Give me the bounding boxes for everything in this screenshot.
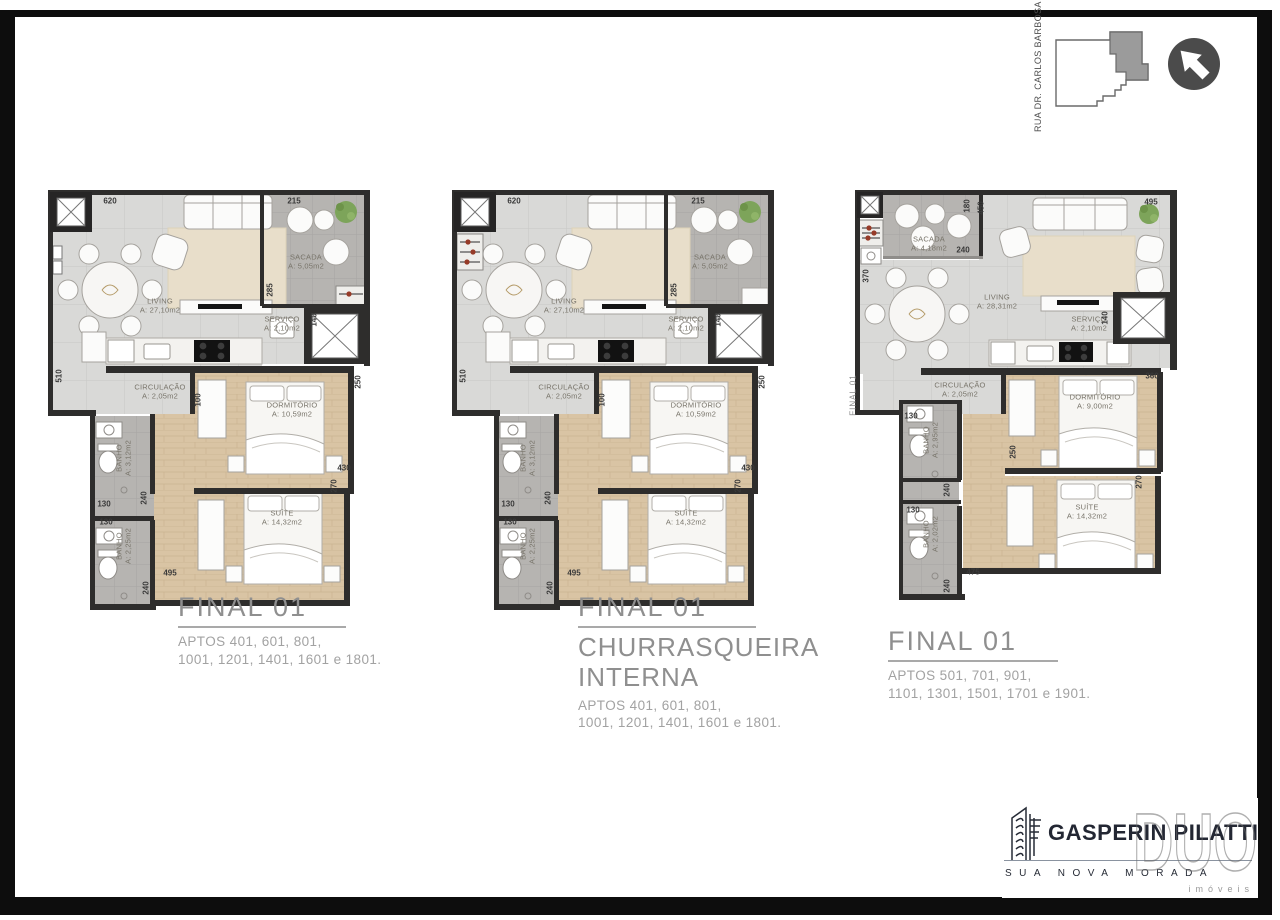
dimension-label: 250 xyxy=(758,375,767,388)
sofa-icon xyxy=(1033,198,1127,230)
plant-icon xyxy=(739,201,761,223)
wardrobe-icon xyxy=(602,500,628,570)
caption-rule xyxy=(178,626,346,628)
dimension-label: 100 xyxy=(194,393,203,406)
dimension-label: 130 xyxy=(503,518,516,527)
building-footprint-icon xyxy=(1052,28,1156,116)
room-area: A: 2,95m2 xyxy=(931,422,940,458)
room-area: A: 2,10m2 xyxy=(264,324,300,333)
room-label-circulacao: CIRCULAÇÃOA: 2,05m2 xyxy=(134,383,185,402)
balcony-chair-icon xyxy=(691,207,717,233)
room-name: DORMITÓRIO xyxy=(671,401,722,410)
dimension-label: 620 xyxy=(507,197,520,206)
wardrobe-icon xyxy=(602,380,630,438)
frame-left xyxy=(0,10,15,915)
room-name: CIRCULAÇÃO xyxy=(538,383,589,392)
room-label-living: LIVINGA: 27,10m2 xyxy=(140,297,180,316)
room-area: A: 10,59m2 xyxy=(272,410,312,419)
aptos-line: APTOS 501, 701, 901, xyxy=(888,667,1118,685)
room-label-circulacao: CIRCULAÇÃOA: 2,05m2 xyxy=(934,381,985,400)
rug-icon xyxy=(1023,236,1135,296)
room-name: DORMITÓRIO xyxy=(1070,393,1121,402)
room-area: A: 5,05m2 xyxy=(288,262,324,271)
room-label-sacada: SACADAA: 5,05m2 xyxy=(288,253,324,272)
sofa-icon xyxy=(184,195,272,229)
armchair-icon xyxy=(1135,234,1165,264)
room-label-banho2: BANHOA: 2,25m2 xyxy=(115,528,134,564)
room-name: CIRCULAÇÃO xyxy=(934,381,985,390)
room-label-servico: SERVIÇOA: 2,10m2 xyxy=(668,315,704,334)
balcony-table-icon xyxy=(925,204,945,224)
frame-top xyxy=(0,10,1272,17)
room-name: SACADA xyxy=(694,253,726,262)
room-label-banho2: BANHOA: 2,02m2 xyxy=(922,516,941,552)
plan-title: FINAL 01 xyxy=(578,592,818,623)
dimension-label: 270 xyxy=(1135,475,1144,488)
cooktop-icon xyxy=(598,340,634,362)
room-name: LIVING xyxy=(147,297,173,306)
balcony-chair-icon xyxy=(947,214,971,238)
room-label-sacada: SACADAA: 5,05m2 xyxy=(692,253,728,272)
dimension-label: 240 xyxy=(544,491,553,504)
room-area: A: 2,05m2 xyxy=(546,392,582,401)
floor-plan-sheet: RUA DR. CARLOS BARBOSA xyxy=(0,0,1280,920)
caption-rule xyxy=(578,626,756,628)
floor-plan-final01-churrasqueira: LIVINGA: 27,10m2SACADAA: 5,05m2SERVIÇOA:… xyxy=(452,190,774,612)
dimension-label: 430 xyxy=(337,464,350,473)
room-area: A: 3,12m2 xyxy=(124,440,133,476)
room-label-banho1: BANHOA: 3,12m2 xyxy=(115,440,134,476)
plan-side-label: FINAL 01 xyxy=(849,374,858,416)
room-area: A: 2,05m2 xyxy=(142,392,178,401)
dimension-label: 215 xyxy=(691,197,704,206)
room-area: A: 4,18m2 xyxy=(911,244,947,253)
room-label-suite: SUÍTEA: 14,32m2 xyxy=(1067,503,1107,522)
dimension-label: 285 xyxy=(266,283,275,296)
sink-icon xyxy=(144,344,170,359)
dimension-label: 285 xyxy=(670,283,679,296)
room-name: BANHO xyxy=(115,444,124,472)
room-name: SUÍTE xyxy=(1075,503,1098,512)
room-name: LIVING xyxy=(984,293,1010,302)
churrasqueira-icon xyxy=(859,220,883,246)
building-icon xyxy=(1008,804,1044,862)
dimension-label: 270 xyxy=(734,479,743,492)
room-name: SUÍTE xyxy=(270,509,293,518)
churrasqueira-icon xyxy=(457,234,483,270)
room-label-servico: SERVIÇOA: 2,10m2 xyxy=(264,315,300,334)
room-name: DORMITÓRIO xyxy=(267,401,318,410)
room-label-banho1: BANHOA: 3,12m2 xyxy=(519,440,538,476)
room-area: A: 27,10m2 xyxy=(544,306,584,315)
aptos-list: APTOS 501, 701, 901, 1101, 1301, 1501, 1… xyxy=(888,667,1118,702)
room-label-dormitorio: DORMITÓRIOA: 10,59m2 xyxy=(671,401,722,420)
room-label-circulacao: CIRCULAÇÃOA: 2,05m2 xyxy=(538,383,589,402)
floor-plan-final01-a: LIVINGA: 27,10m2SACADAA: 5,05m2SERVIÇOA:… xyxy=(48,190,370,612)
balcony-chair-icon xyxy=(895,204,919,228)
dimension-label: 240 xyxy=(956,246,969,255)
aptos-line: 1001, 1201, 1401, 1601 e 1801. xyxy=(578,714,818,732)
plan-title: FINAL 01 xyxy=(178,592,408,623)
dimension-label: 370 xyxy=(862,269,871,282)
dimension-label: 215 xyxy=(287,197,300,206)
plant-icon xyxy=(1139,204,1159,224)
room-name: BANHO xyxy=(519,532,528,560)
dimension-label: 620 xyxy=(103,197,116,206)
dimension-label: 510 xyxy=(459,369,468,382)
room-name: SERVIÇO xyxy=(668,315,703,324)
dimension-label: 130 xyxy=(97,500,110,509)
room-name: SACADA xyxy=(913,235,945,244)
room-name: SUÍTE xyxy=(674,509,697,518)
sink-icon xyxy=(548,344,574,359)
dimension-label: 240 xyxy=(943,579,952,592)
sink-icon xyxy=(1027,346,1053,361)
room-area: A: 14,32m2 xyxy=(262,518,302,527)
tv-icon xyxy=(1057,300,1099,305)
dimension-label: 100 xyxy=(598,393,607,406)
dimension-label: 140 xyxy=(714,313,723,326)
balcony-chair-icon xyxy=(727,239,753,265)
dimension-label: 240 xyxy=(546,581,555,594)
room-label-suite: SUÍTEA: 14,32m2 xyxy=(666,509,706,528)
wardrobe-icon xyxy=(1009,380,1035,436)
plan-caption-2: FINAL 01 CHURRASQUEIRA INTERNA APTOS 401… xyxy=(578,592,818,732)
plan-subtitle: INTERNA xyxy=(578,663,818,693)
room-area: A: 2,02m2 xyxy=(931,516,940,552)
room-label-banho2: BANHOA: 2,25m2 xyxy=(519,528,538,564)
room-area: A: 5,05m2 xyxy=(692,262,728,271)
room-label-banho1: BANHOA: 2,95m2 xyxy=(922,422,941,458)
svg-text:DUO: DUO xyxy=(1133,797,1257,888)
balcony-table-icon xyxy=(314,210,334,230)
laundry-tub-icon xyxy=(1107,342,1129,364)
dimension-label: 430 xyxy=(741,464,754,473)
dimension-label: 130 xyxy=(904,412,917,421)
plan-caption-1: FINAL 01 APTOS 401, 601, 801, 1001, 1201… xyxy=(178,592,408,668)
room-label-dormitorio: DORMITÓRIOA: 10,59m2 xyxy=(267,401,318,420)
aptos-line: 1101, 1301, 1501, 1701 e 1901. xyxy=(888,685,1118,703)
frame-bottom xyxy=(0,897,1272,915)
plan-caption-3: FINAL 01 APTOS 501, 701, 901, 1101, 1301… xyxy=(888,626,1118,702)
room-name: CIRCULAÇÃO xyxy=(134,383,185,392)
dimension-label: 130 xyxy=(906,506,919,515)
dimension-label: 270 xyxy=(330,479,339,492)
room-area: A: 14,32m2 xyxy=(1067,512,1107,521)
aptos-line: APTOS 401, 601, 801, xyxy=(578,697,818,715)
dimension-label: 130 xyxy=(501,500,514,509)
plan-title: FINAL 01 xyxy=(888,626,1118,657)
wardrobe-icon xyxy=(198,380,226,438)
dimension-label: 510 xyxy=(55,369,64,382)
dimension-label: 240 xyxy=(140,491,149,504)
room-area: A: 2,10m2 xyxy=(668,324,704,333)
room-name: BANHO xyxy=(115,532,124,560)
dimension-label: 180 xyxy=(963,199,972,212)
dimension-label: 140 xyxy=(1101,311,1110,324)
room-area: A: 2,05m2 xyxy=(942,390,978,399)
room-area: A: 2,25m2 xyxy=(124,528,133,564)
floor-plan-drawing xyxy=(855,190,1180,610)
aptos-line: 1001, 1201, 1401, 1601 e 1801. xyxy=(178,651,408,669)
room-area: A: 2,10m2 xyxy=(1071,324,1107,333)
balcony-table-icon xyxy=(718,210,738,230)
room-area: A: 2,25m2 xyxy=(528,528,537,564)
frame-right xyxy=(1257,10,1272,915)
cooktop-icon xyxy=(1059,342,1093,362)
room-label-suite: SUÍTEA: 14,32m2 xyxy=(262,509,302,528)
room-area: A: 14,32m2 xyxy=(666,518,706,527)
tv-icon xyxy=(198,304,242,309)
room-label-living: LIVINGA: 28,31m2 xyxy=(977,293,1017,312)
balcony-chair-icon xyxy=(287,207,313,233)
caption-rule xyxy=(888,660,1058,662)
room-label-sacada: SACADAA: 4,18m2 xyxy=(911,235,947,254)
room-name: LIVING xyxy=(551,297,577,306)
partner-logo-duo: DUO xyxy=(1130,794,1262,894)
armchair-icon xyxy=(1135,266,1164,295)
dimension-label: 250 xyxy=(354,375,363,388)
wardrobe-icon xyxy=(198,500,224,570)
room-label-living: LIVINGA: 27,10m2 xyxy=(544,297,584,316)
tv-icon xyxy=(602,304,646,309)
aptos-list: APTOS 401, 601, 801, 1001, 1201, 1401, 1… xyxy=(578,697,818,732)
room-name: BANHO xyxy=(922,520,931,548)
room-name: SACADA xyxy=(290,253,322,262)
dimension-label: 495 xyxy=(163,569,176,578)
room-name: BANHO xyxy=(922,426,931,454)
room-name: BANHO xyxy=(519,444,528,472)
dimension-label: 130 xyxy=(99,518,112,527)
dimension-label: 240 xyxy=(943,483,952,496)
aptos-list: APTOS 401, 601, 801, 1001, 1201, 1401, 1… xyxy=(178,633,408,668)
plan-subtitle: CHURRASQUEIRA xyxy=(578,633,818,663)
sofa-icon xyxy=(588,195,676,229)
room-name: SERVIÇO xyxy=(264,315,299,324)
north-arrow-icon xyxy=(1166,36,1222,92)
plant-icon xyxy=(335,201,357,223)
room-area: A: 3,12m2 xyxy=(528,440,537,476)
street-label: RUA DR. CARLOS BARBOSA xyxy=(1033,26,1043,132)
dimension-label: 240 xyxy=(142,581,151,594)
partner-caption: imóveis xyxy=(1188,884,1254,894)
dimension-label: 360 xyxy=(1145,372,1158,381)
balcony-chair-icon xyxy=(323,239,349,265)
footer-logo: GASPERIN PILATTI SUA NOVA MORADA DUO imó… xyxy=(1002,798,1258,898)
dimension-label: 450 xyxy=(977,201,986,214)
dimension-label: 475 xyxy=(966,568,979,577)
dimension-label: 140 xyxy=(310,313,319,326)
room-area: A: 10,59m2 xyxy=(676,410,716,419)
room-area: A: 9,00m2 xyxy=(1077,402,1113,411)
wardrobe-icon xyxy=(1007,486,1033,546)
aptos-line: APTOS 401, 601, 801, xyxy=(178,633,408,651)
dimension-label: 495 xyxy=(1144,198,1157,207)
room-label-dormitorio: DORMITÓRIOA: 9,00m2 xyxy=(1070,393,1121,412)
room-area: A: 27,10m2 xyxy=(140,306,180,315)
dimension-label: 495 xyxy=(567,569,580,578)
dimension-label: 250 xyxy=(1009,445,1018,458)
floor-plan-final01-b: SACADAA: 4,18m2LIVINGA: 28,31m2SERVIÇOA:… xyxy=(855,190,1180,610)
cooktop-icon xyxy=(194,340,230,362)
room-area: A: 28,31m2 xyxy=(977,302,1017,311)
